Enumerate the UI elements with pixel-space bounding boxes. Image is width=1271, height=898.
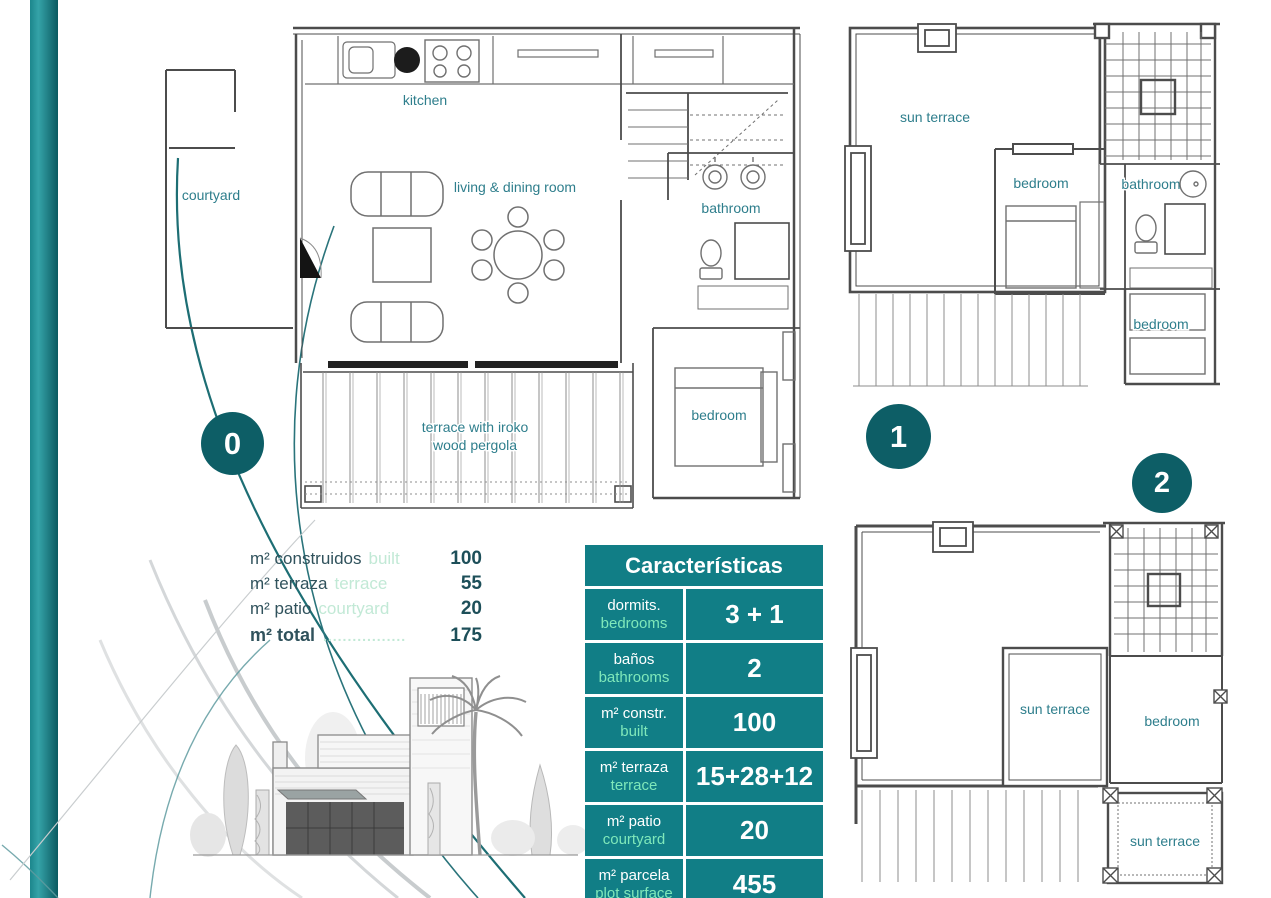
label-en: built xyxy=(620,723,648,741)
measure-value: 20 xyxy=(461,596,482,621)
floor-plan-second: sun terrace bedroom xyxy=(848,516,1228,890)
floor-plan-first: sun terrace bedroom bathroom xyxy=(843,16,1227,396)
label-en: courtyard xyxy=(603,831,666,849)
row-label-built: m² constr. built xyxy=(585,697,683,748)
room-label-bathroom: bathroom xyxy=(701,200,760,216)
characteristics-table: Características dormits. bedrooms 3 + 1 … xyxy=(585,545,823,898)
floor-badge-1: 1 xyxy=(866,404,931,469)
row-label-bathrooms: baños bathrooms xyxy=(585,643,683,694)
measure-label: m² total xyxy=(250,621,315,649)
table-row: m² constr. built 100 xyxy=(585,697,823,748)
table-row: dormits. bedrooms 3 + 1 xyxy=(585,589,823,640)
table-row: baños bathrooms 2 xyxy=(585,643,823,694)
measure-label-en: terrace xyxy=(334,571,387,596)
measure-label: m² construidos xyxy=(250,546,361,571)
label-en: terrace xyxy=(611,777,658,795)
row-value-bedrooms: 3 + 1 xyxy=(686,589,823,640)
row-value-bathrooms: 2 xyxy=(686,643,823,694)
measure-row-built: m² construidos built 100 xyxy=(250,546,482,571)
room-label-sun-terrace2b: sun terrace xyxy=(1130,833,1200,849)
label-en: bathrooms xyxy=(599,669,670,687)
row-label-terrace: m² terraza terrace xyxy=(585,751,683,802)
measure-label-en: courtyard xyxy=(318,596,389,621)
floor-badge-2: 2 xyxy=(1132,453,1192,513)
dotted-leader: ................. xyxy=(323,622,406,650)
room-label-terrace-line1: terrace with iroko xyxy=(422,419,529,435)
room-label-sun-terrace1: sun terrace xyxy=(900,109,970,125)
room-label-living: living & dining room xyxy=(454,179,576,195)
room-label-bedroom2: bedroom xyxy=(1144,713,1199,729)
room-label-sun-terrace2a: sun terrace xyxy=(1020,701,1090,717)
label-es: m² constr. xyxy=(601,705,667,723)
label-es: m² patio xyxy=(607,813,661,831)
row-value-courtyard: 20 xyxy=(686,805,823,856)
label-en: plot surface xyxy=(595,885,673,898)
room-label-bedroom1a: bedroom xyxy=(1013,175,1068,191)
ground-floor-measurements: m² construidos built 100 m² terraza terr… xyxy=(250,546,482,650)
measure-value: 175 xyxy=(450,622,482,650)
table-row: m² patio courtyard 20 xyxy=(585,805,823,856)
brochure-page: courtyard kitchen living & dining room xyxy=(0,0,1271,898)
house-elevation-sketch xyxy=(178,650,590,888)
label-es: dormits. xyxy=(607,597,660,615)
measure-value: 55 xyxy=(461,571,482,596)
row-label-courtyard: m² patio courtyard xyxy=(585,805,683,856)
table-row: m² parcela plot surface 455 xyxy=(585,859,823,898)
measure-value: 100 xyxy=(450,546,482,571)
room-label-bedroom1b: bedroom xyxy=(1133,316,1188,332)
measure-row-total: m² total ................. 175 xyxy=(250,621,482,650)
room-label-bedroom0: bedroom xyxy=(691,407,746,423)
row-value-built: 100 xyxy=(686,697,823,748)
floor-badge-0: 0 xyxy=(201,412,264,475)
label-es: m² terraza xyxy=(600,759,668,777)
room-label-kitchen: kitchen xyxy=(403,92,447,108)
room-label-terrace-line2: wood pergola xyxy=(432,437,517,453)
row-value-plot: 455 xyxy=(686,859,823,898)
row-value-terrace: 15+28+12 xyxy=(686,751,823,802)
row-label-bedrooms: dormits. bedrooms xyxy=(585,589,683,640)
measure-row-terrace: m² terraza terrace 55 xyxy=(250,571,482,596)
row-label-plot: m² parcela plot surface xyxy=(585,859,683,898)
table-row: m² terraza terrace 15+28+12 xyxy=(585,751,823,802)
label-es: m² parcela xyxy=(599,867,670,885)
label-en: bedrooms xyxy=(601,615,668,633)
measure-label: m² patio xyxy=(250,596,311,621)
measure-label: m² terraza xyxy=(250,571,327,596)
measure-label-en: built xyxy=(368,546,399,571)
measure-row-courtyard: m² patio courtyard 20 xyxy=(250,596,482,621)
room-label-bathroom1: bathroom xyxy=(1121,176,1180,192)
table-title: Características xyxy=(585,545,823,586)
room-label-courtyard: courtyard xyxy=(182,187,240,203)
label-es: baños xyxy=(614,651,655,669)
